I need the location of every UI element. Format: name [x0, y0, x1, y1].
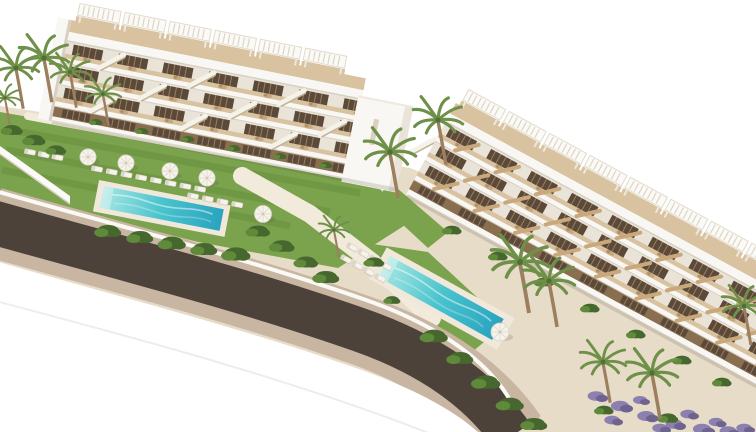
architectural-render-image: [0, 0, 756, 432]
render-canvas: [0, 0, 756, 432]
